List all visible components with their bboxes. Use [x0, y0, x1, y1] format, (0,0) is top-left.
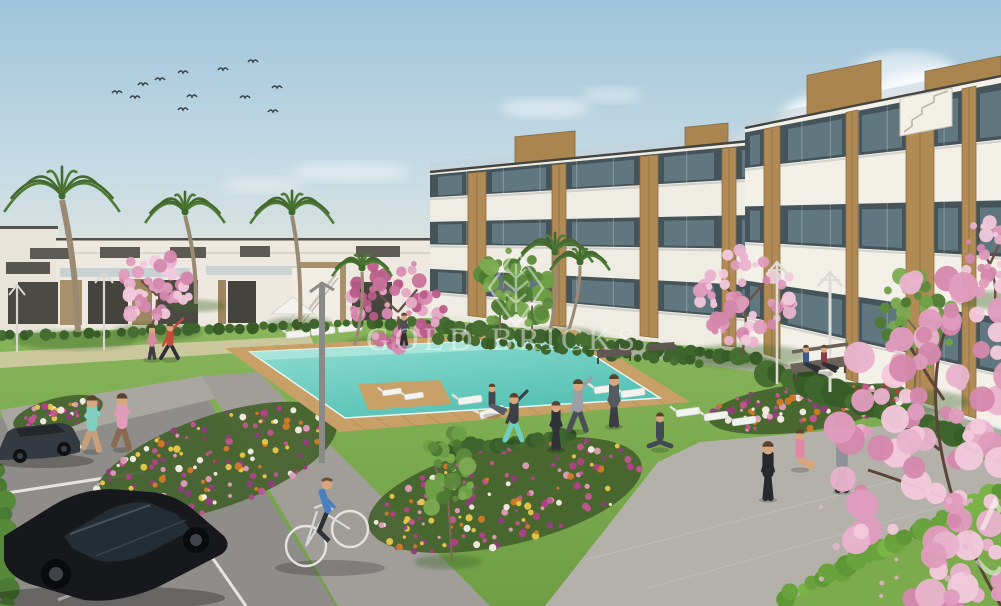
cloud	[582, 87, 642, 103]
blossom-clump	[867, 435, 893, 461]
fallen-petal	[894, 557, 898, 561]
blossom-clump	[720, 279, 730, 289]
blossom-clump	[907, 270, 923, 286]
leaf-clump	[945, 338, 953, 346]
blossom-clump	[925, 482, 947, 504]
leaf-clump	[452, 495, 458, 501]
leaf-clump	[920, 295, 933, 308]
blossom-clump	[977, 244, 986, 253]
shrub	[781, 583, 798, 600]
render-image: GOLD BRICKS	[0, 0, 1001, 606]
blossom-clump	[851, 389, 874, 412]
shrub	[278, 321, 288, 331]
leaf-clump	[482, 259, 499, 276]
fallen-petal	[944, 575, 950, 581]
shrub	[26, 330, 33, 337]
blossom-clump	[873, 388, 890, 405]
blossom-clump	[707, 291, 715, 299]
blossom-clump	[126, 257, 136, 267]
tree-shadow	[414, 555, 482, 569]
leaf-clump	[874, 317, 886, 329]
blossom-clump	[135, 300, 142, 307]
blossom-clump	[396, 267, 406, 277]
blossom-clump	[420, 291, 428, 299]
shrub	[649, 353, 660, 364]
palm-crown	[359, 265, 366, 272]
blossom-clump	[705, 270, 717, 282]
blossom-clump	[753, 320, 767, 334]
blossom-clump	[373, 277, 388, 292]
blossom-clump	[401, 288, 411, 298]
blossom-clump	[881, 405, 909, 433]
blossom-clump	[955, 441, 984, 470]
person-shadow	[815, 371, 833, 377]
fallen-petal	[879, 581, 884, 586]
blossom-clump	[762, 276, 770, 284]
blossom-clump	[142, 291, 148, 297]
blossom-clump	[739, 259, 751, 271]
leaf-clump	[466, 481, 474, 489]
blossom-clump	[910, 387, 928, 405]
cloud	[290, 162, 410, 182]
shrub	[225, 324, 234, 333]
blossom-clump	[956, 379, 967, 390]
window-glass	[938, 208, 958, 251]
blossom-clump	[830, 467, 855, 492]
blossom-clump	[824, 412, 856, 444]
shrub	[5, 330, 15, 340]
blossom-clump	[949, 408, 964, 423]
shrub	[695, 347, 705, 357]
fallen-petal	[962, 544, 968, 550]
shrub	[235, 324, 245, 334]
fallen-petal	[819, 505, 823, 509]
blossom-clump	[736, 296, 749, 309]
blossom-clump	[916, 327, 932, 343]
shrub	[117, 328, 126, 337]
shrub	[94, 331, 101, 338]
blossom-clump	[408, 266, 417, 275]
blossom-clump	[985, 263, 991, 269]
window-glass	[664, 153, 714, 182]
window-glass	[862, 209, 902, 248]
window-glass	[750, 211, 760, 241]
window-glass	[750, 134, 760, 165]
shrub	[259, 321, 268, 330]
scene-svg: GOLD BRICKS	[0, 0, 1001, 606]
blossom-clump	[921, 542, 947, 568]
blossom-clump	[722, 250, 733, 261]
shrub	[268, 323, 278, 333]
person-shadow	[483, 413, 501, 419]
blossom-clump	[731, 260, 741, 270]
blossom-clump	[706, 318, 720, 332]
window-glass	[572, 221, 634, 245]
shrub	[695, 359, 704, 368]
shrub	[128, 326, 140, 338]
window-glass	[788, 210, 842, 245]
blossom-clump	[979, 228, 993, 242]
blossom-clump	[850, 490, 879, 519]
blossom-clump	[843, 342, 874, 373]
leaf-clump	[880, 302, 891, 313]
palm-crown	[182, 209, 189, 216]
fallen-petal	[946, 497, 953, 504]
blossom-clump	[943, 589, 959, 605]
blossom-clump	[853, 524, 869, 540]
window-glass	[980, 90, 1001, 138]
leaf-clump	[892, 301, 899, 308]
blossom-clump	[432, 289, 441, 298]
shrub	[83, 328, 94, 339]
blossom-clump	[180, 271, 194, 285]
palm-crown	[289, 209, 296, 216]
blossom-clump	[153, 313, 161, 321]
blossom-clump	[164, 250, 177, 263]
blossom-clump	[885, 340, 897, 352]
blossom-clump	[382, 308, 393, 319]
blossom-clump	[972, 341, 989, 358]
blossom-clump	[368, 292, 377, 301]
blossom-clump	[389, 285, 400, 296]
blossom-clump	[721, 328, 726, 333]
shrub	[309, 319, 319, 329]
blossom-clump	[738, 278, 747, 287]
blossom-clump	[350, 287, 361, 298]
blossom-clump	[979, 278, 989, 288]
palm-crown	[59, 193, 66, 200]
blossom-clump	[741, 335, 752, 346]
blossom-clump	[970, 222, 977, 229]
leaf-clump	[901, 297, 911, 307]
blossom-clump	[728, 312, 735, 319]
leaf-clump	[451, 426, 467, 442]
blossom-clump	[907, 403, 924, 420]
shrub	[334, 320, 342, 328]
background-buildings-left	[0, 226, 430, 334]
blossom-clump	[718, 269, 728, 279]
blossom-clump	[365, 306, 372, 313]
window-glass	[862, 108, 902, 152]
leaf-clump	[428, 442, 439, 453]
leaf-clump	[884, 287, 892, 295]
leaf-clump	[434, 459, 443, 468]
blossom-clump	[965, 254, 975, 264]
blossom-clump	[439, 305, 448, 314]
blossom-clump	[887, 524, 898, 535]
blossom-clump	[369, 312, 378, 321]
shrub	[190, 323, 201, 334]
blossom-clump	[123, 287, 137, 301]
blossom-clump	[724, 336, 734, 346]
shrub	[246, 322, 258, 334]
shrub	[213, 323, 225, 335]
watermark-text: GOLD BRICKS	[366, 322, 640, 358]
shrub	[49, 332, 56, 339]
shrub	[531, 432, 545, 446]
shrub	[59, 330, 69, 340]
blossom-clump	[144, 277, 152, 285]
blossom-clump	[903, 456, 925, 478]
fallen-petal	[879, 594, 883, 598]
leaf-clump	[436, 491, 449, 504]
blossom-clump	[123, 308, 137, 322]
blossom-clump	[944, 303, 959, 318]
blossom-clump	[944, 492, 965, 513]
blossom-clump	[159, 291, 169, 301]
fallen-petal	[819, 576, 824, 581]
blossom-clump	[693, 283, 708, 298]
fallen-petal	[964, 569, 971, 576]
leaf-clump	[453, 439, 462, 448]
leaf-clump	[505, 248, 511, 254]
window-glass	[438, 272, 462, 293]
blossom-clump	[749, 311, 757, 319]
shrub	[155, 324, 167, 336]
blossom-clump	[412, 273, 427, 288]
blossom-clump	[758, 256, 769, 267]
cloud	[500, 98, 590, 118]
leaf-clump	[444, 473, 461, 490]
blossom-clump	[966, 239, 971, 244]
blossom-clump	[384, 302, 390, 308]
blossom-clump	[782, 292, 796, 306]
blossom-clump	[962, 430, 974, 442]
fallen-petal	[968, 530, 973, 535]
blossom-clump	[897, 429, 922, 454]
leaf-clump	[534, 306, 548, 320]
leaf-clump	[527, 255, 537, 265]
blossom-clump	[948, 272, 978, 302]
leaf-clump	[458, 457, 476, 475]
fallen-petal	[962, 499, 969, 506]
person-shadow	[651, 447, 669, 453]
leaf-clump	[447, 462, 457, 472]
window-glass	[438, 224, 462, 243]
blossom-clump	[969, 386, 994, 411]
blossom-clump	[947, 514, 962, 529]
blossom-clump	[173, 291, 182, 300]
shrub	[138, 328, 146, 336]
blossom-clump	[752, 262, 758, 268]
palm-crown	[577, 259, 584, 266]
window-glass	[664, 220, 714, 246]
person-shadow	[791, 467, 809, 473]
shrub	[685, 354, 695, 364]
leaf-clump	[458, 491, 467, 500]
blossom-clump	[153, 259, 167, 273]
blossom-clump	[132, 266, 144, 278]
window-glass	[438, 175, 462, 196]
fallen-petal	[832, 543, 839, 550]
blossom-clump	[406, 297, 418, 309]
person-shadow	[797, 371, 815, 377]
shrub	[343, 320, 350, 327]
blossom-clump	[153, 278, 164, 289]
blossom-clump	[733, 244, 746, 257]
blossom-clump	[889, 354, 917, 382]
blossom-clump	[969, 307, 985, 323]
palm-crown	[552, 249, 559, 256]
fallen-petal	[894, 576, 898, 580]
cloud	[222, 177, 302, 193]
person-shadow	[143, 357, 161, 363]
